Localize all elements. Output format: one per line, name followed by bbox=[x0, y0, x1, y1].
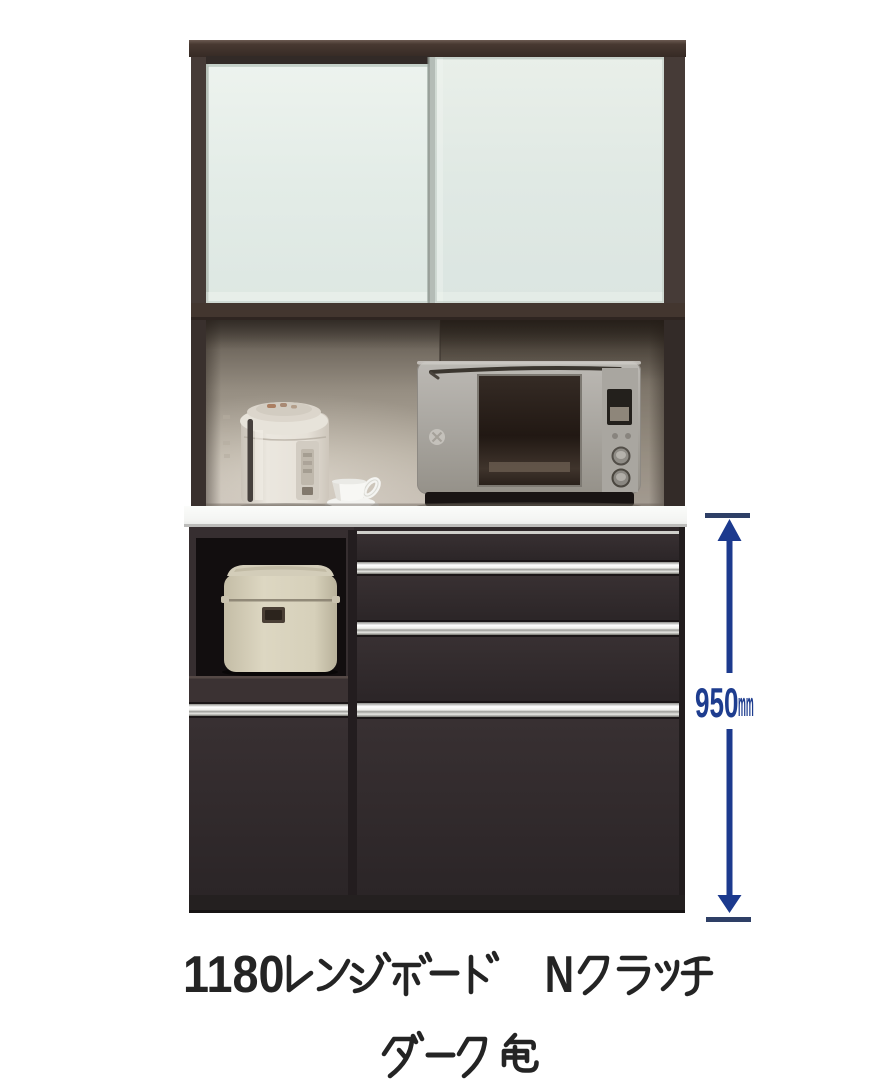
svg-text:mm: mm bbox=[738, 687, 754, 724]
svg-text:950: 950 bbox=[695, 680, 738, 727]
svg-text:1180: 1180 bbox=[183, 946, 285, 1004]
svg-text:N: N bbox=[545, 945, 574, 1003]
